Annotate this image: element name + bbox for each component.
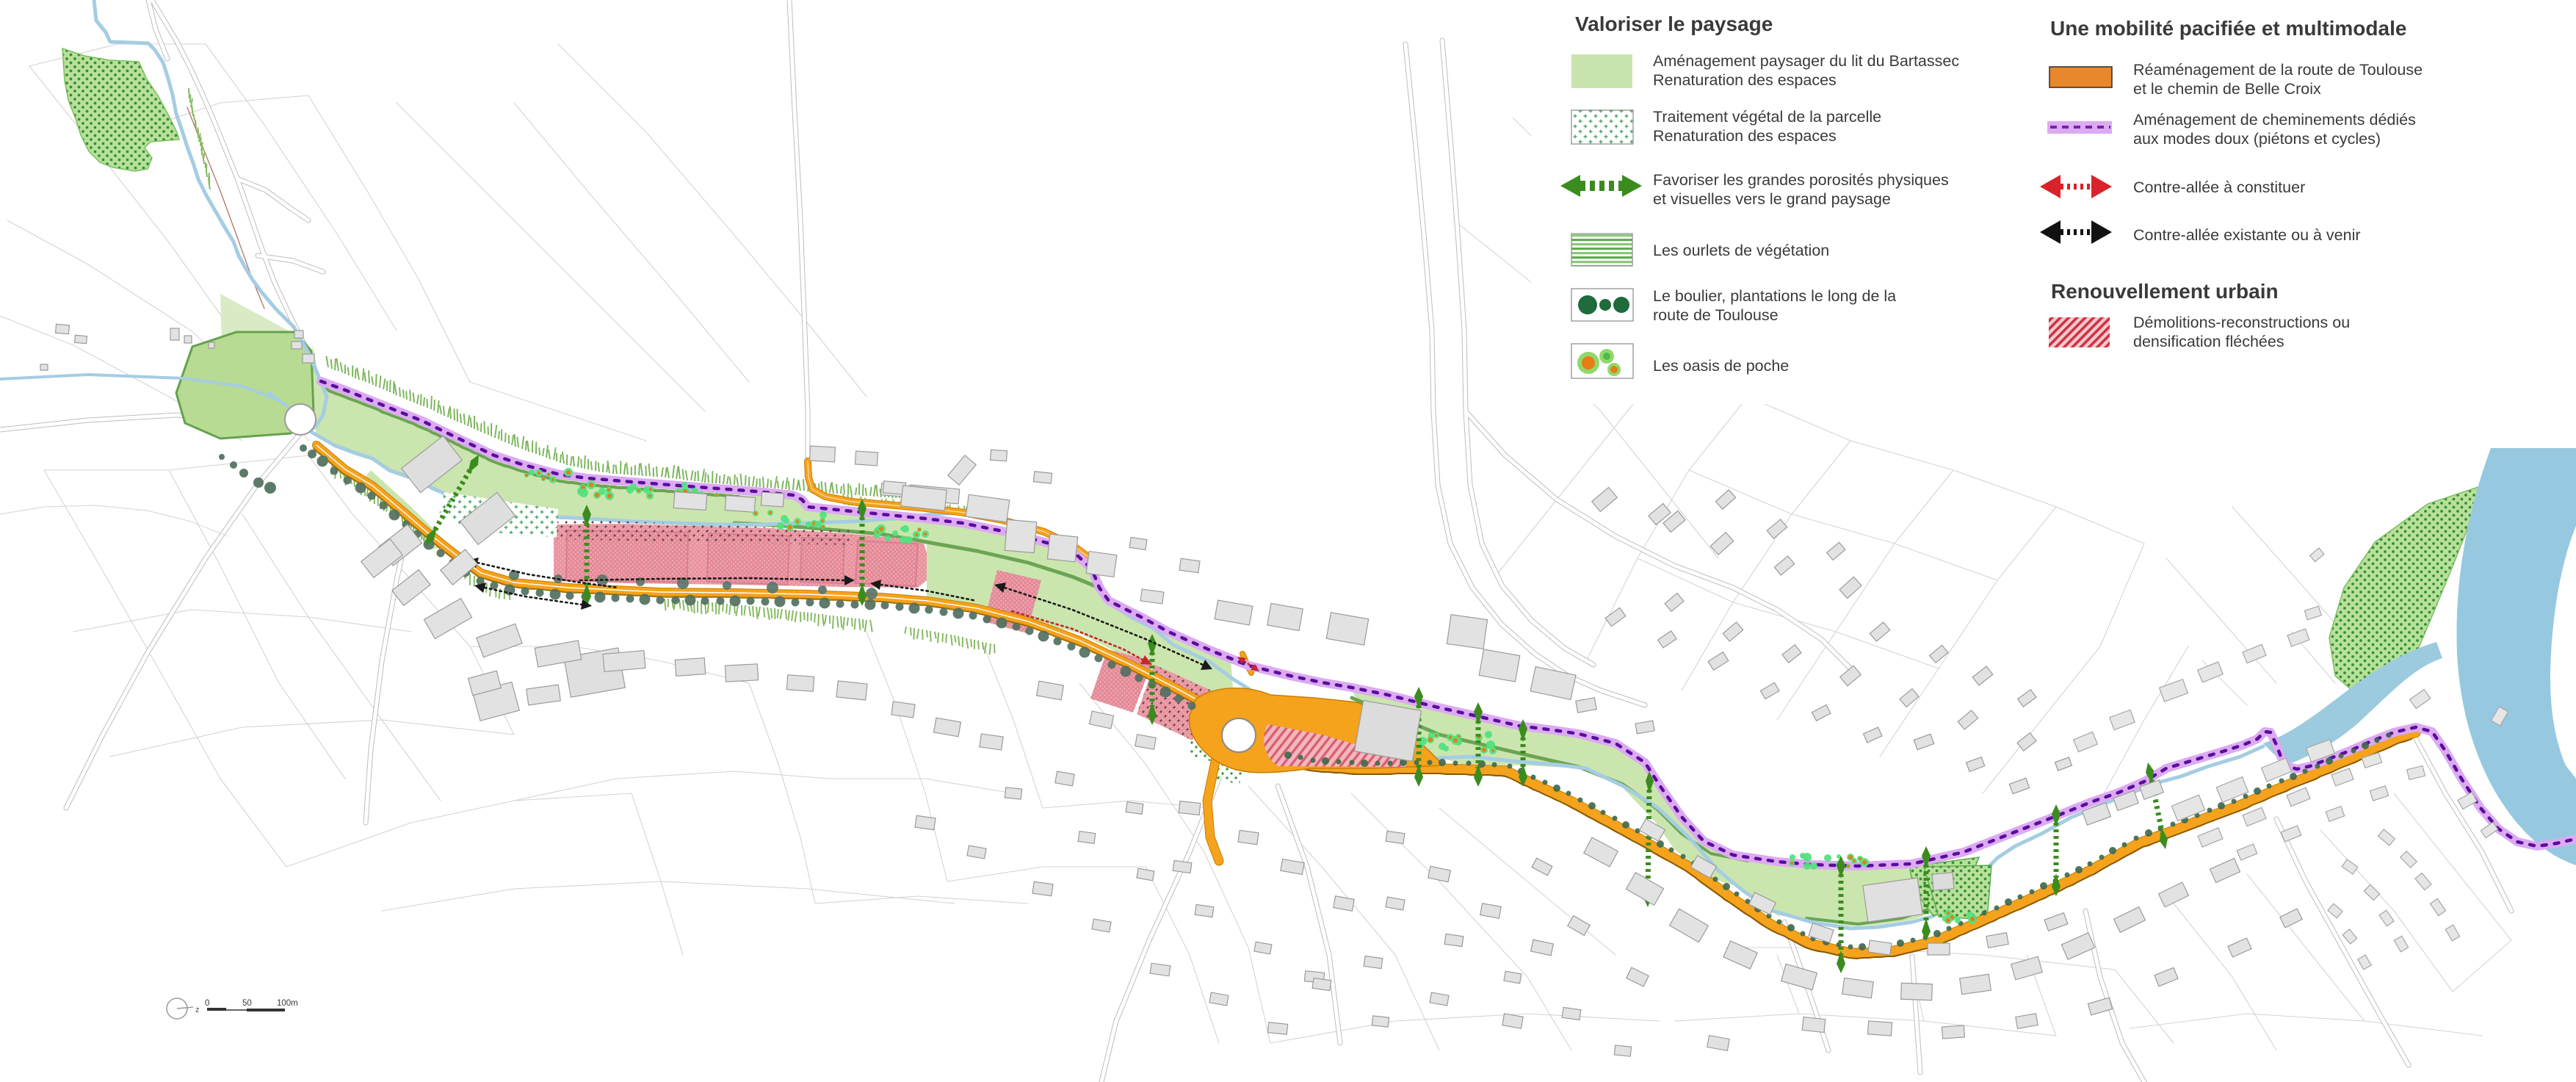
svg-text:et visuelles vers le grand pay: et visuelles vers le grand paysage	[1653, 190, 1891, 208]
svg-text:0: 0	[205, 999, 209, 1008]
svg-text:z: z	[195, 1006, 200, 1014]
svg-text:Valoriser le paysage: Valoriser le paysage	[1575, 12, 1773, 35]
svg-text:aux modes doux (piétons et cyc: aux modes doux (piétons et cycles)	[2133, 130, 2381, 148]
svg-text:Le boulier, plantations le lon: Le boulier, plantations le long de la	[1653, 287, 1896, 305]
svg-text:Contre-allée existante ou à ve: Contre-allée existante ou à venir	[2133, 226, 2361, 244]
svg-text:Renaturation des espaces: Renaturation des espaces	[1653, 127, 1837, 145]
svg-text:Renouvellement urbain: Renouvellement urbain	[2051, 280, 2279, 303]
svg-text:Favoriser les grandes porosité: Favoriser les grandes porosités physique…	[1653, 171, 1949, 189]
svg-text:et le chemin de Belle Croix: et le chemin de Belle Croix	[2133, 80, 2321, 98]
svg-text:Réaménagement de la route de T: Réaménagement de la route de Toulouse	[2133, 61, 2423, 79]
svg-text:Traitement végétal de la parce: Traitement végétal de la parcelle	[1653, 108, 1881, 126]
svg-text:Les ourlets de végétation: Les ourlets de végétation	[1653, 242, 1829, 259]
svg-text:Renaturation des espaces: Renaturation des espaces	[1653, 71, 1837, 89]
svg-text:50: 50	[242, 999, 252, 1008]
svg-text:Les oasis de poche: Les oasis de poche	[1653, 357, 1789, 375]
svg-text:100m: 100m	[277, 999, 298, 1008]
svg-text:Une mobilité pacifiée et multi: Une mobilité pacifiée et multimodale	[2050, 17, 2406, 40]
svg-text:Démolitions-reconstructions ou: Démolitions-reconstructions ou	[2133, 314, 2350, 331]
svg-text:route de Toulouse: route de Toulouse	[1653, 306, 1779, 324]
svg-text:Contre-allée à constituer: Contre-allée à constituer	[2133, 178, 2305, 196]
svg-text:Aménagement paysager du lit du: Aménagement paysager du lit du Bartassec	[1653, 52, 1959, 70]
svg-text:Aménagement de cheminements dé: Aménagement de cheminements dédiés	[2133, 111, 2416, 129]
svg-text:densification fléchées: densification fléchées	[2133, 333, 2284, 350]
